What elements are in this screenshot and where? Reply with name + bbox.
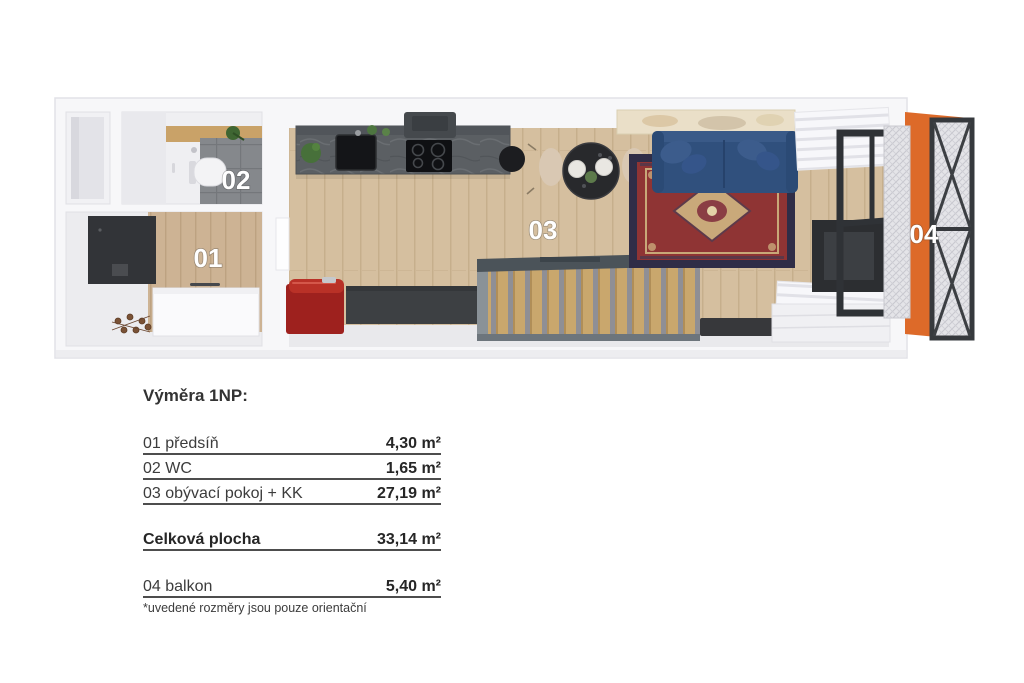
plate-left: [569, 161, 586, 178]
bar-stool: [499, 146, 525, 172]
room-04-label: 04: [910, 219, 939, 249]
kitchen-sink: [336, 130, 376, 170]
bottom-wall-shade: [56, 350, 906, 357]
hall-wardrobe: [88, 216, 156, 284]
legend-row-02-value: 1,65 m²: [386, 460, 441, 478]
legend-balcony-label: 04 balkon: [143, 578, 212, 596]
room-03-label: 03: [529, 215, 558, 245]
wall-niche: [276, 218, 289, 270]
legend-total-value: 33,14 m²: [377, 531, 441, 549]
toilet: [189, 158, 226, 186]
room-02-wc: 02: [122, 112, 262, 204]
range-hood: [404, 112, 456, 138]
legend-row-02: 02 WC 1,65 m²: [143, 455, 441, 480]
legend-row-total: Celková plocha 33,14 m²: [143, 526, 441, 551]
hall-cabinet: [153, 283, 259, 336]
legend-title: Výměra 1NP:: [143, 386, 441, 407]
legend-row-01: 01 předsíň 4,30 m²: [143, 430, 441, 455]
legend-row-03-label: 03 obývací pokoj + KK: [143, 485, 303, 503]
herb-pot-2: [382, 128, 390, 136]
wc-faucet: [191, 147, 197, 153]
room-01-hall: 01: [66, 212, 262, 346]
room-01-label: 01: [194, 243, 223, 273]
legend-row-01-value: 4,30 m²: [386, 435, 441, 453]
area-legend: Výměra 1NP: 01 předsíň 4,30 m² 02 WC 1,6…: [143, 386, 441, 615]
legend-row-02-label: 02 WC: [143, 460, 192, 478]
dark-bench: [346, 286, 478, 324]
page: 02 01: [0, 0, 1024, 683]
legend-balcony-value: 5,40 m²: [386, 578, 441, 596]
room-02-label: 02: [222, 165, 251, 195]
red-cabinet: [286, 277, 344, 334]
wall-artwork: [617, 110, 795, 134]
closet-niche: [66, 112, 110, 204]
plate-right: [596, 159, 613, 176]
wc-door-handle: [172, 163, 175, 173]
legend-footnote: *uvedené rozměry jsou pouze orientační: [143, 601, 441, 615]
sofa: [652, 131, 798, 193]
balcony-inner-mesh: [884, 126, 910, 318]
legend-total-label: Celková plocha: [143, 531, 260, 549]
room-04-balcony: 04: [884, 112, 972, 340]
kitchen-counter: [296, 126, 510, 179]
legend-row-balcony: 04 balkon 5,40 m²: [143, 573, 441, 598]
cooktop: [406, 140, 452, 172]
legend-row-03-value: 27,19 m²: [377, 485, 441, 503]
counter-plant: [301, 143, 321, 163]
herb-pot: [367, 125, 377, 135]
table-centerpiece: [585, 171, 597, 183]
dining-chair-left: [539, 148, 563, 186]
room-03-living: 03: [276, 107, 904, 347]
legend-row-01-label: 01 předsíň: [143, 435, 219, 453]
legend-row-03: 03 obývací pokoj + KK 27,19 m²: [143, 480, 441, 505]
